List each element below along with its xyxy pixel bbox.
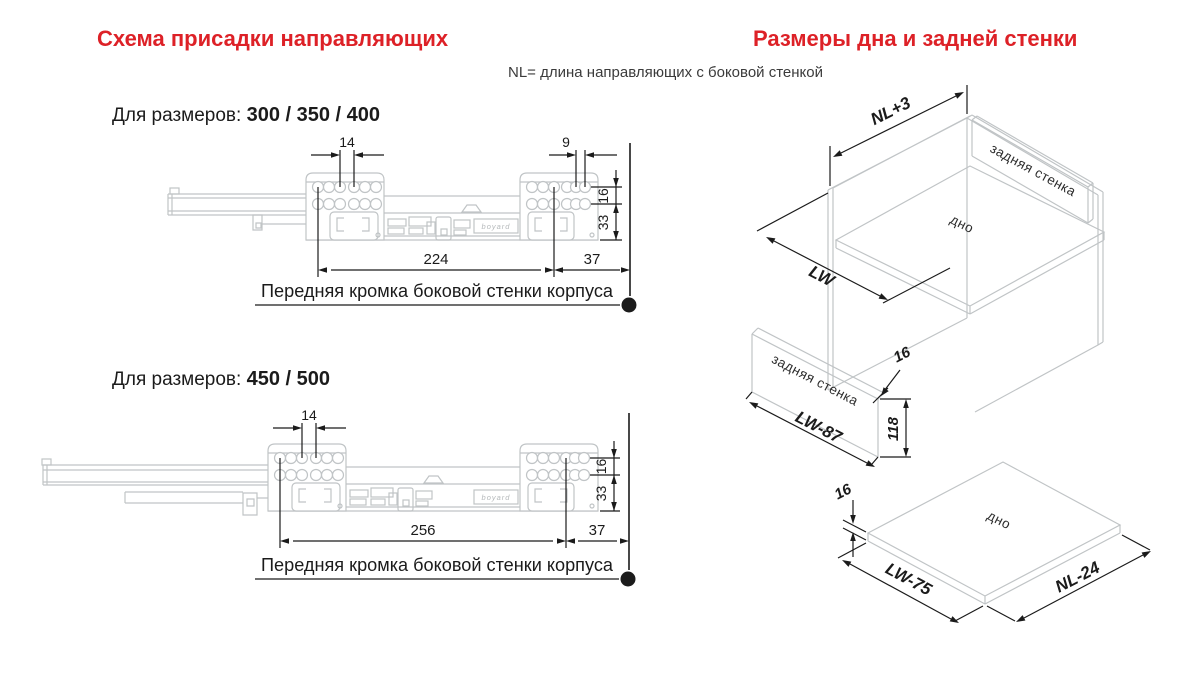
dim-16-bottom-thickness-label: 16 (832, 480, 855, 503)
brand-logo: boyard (482, 222, 511, 231)
dim-256-label: 256 (410, 522, 435, 539)
size-label-2: Для размеров: 450 / 500 (112, 368, 330, 391)
dim-37-label: 37 (589, 522, 606, 539)
subtitle: NL= длина направляющих с боковой стенкой (508, 64, 823, 81)
reference-dot-2 (621, 572, 636, 587)
page: Схема присадки направляющих Размеры дна … (0, 0, 1200, 675)
dim-33-label: 33 (593, 486, 609, 502)
slide-rail-gray-2: boyard (42, 444, 598, 515)
dim-14-label: 14 (301, 407, 317, 423)
bottom-panel-label: дно (948, 212, 977, 236)
size-label-1-prefix: Для размеров: (112, 105, 241, 126)
slide-rail-gray-1: boyard (168, 173, 598, 240)
mount-block-right (520, 444, 598, 511)
slide-mechanism: boyard (388, 205, 518, 240)
brand-logo: boyard (482, 493, 511, 502)
size-label-2-sizes: 450 / 500 (247, 368, 330, 390)
latch-lever (462, 205, 481, 212)
slide-drawing-2: boyard (40, 400, 660, 600)
slide-mechanism: boyard (350, 476, 518, 511)
reference-dot-1 (622, 298, 637, 313)
right-title: Размеры дна и задней стенки (753, 26, 1077, 52)
left-title: Схема присадки направляющих (97, 26, 448, 52)
rail-hook (42, 459, 51, 465)
dim-16-label: 16 (595, 188, 611, 204)
exploded-back-panel: задняя стенка LW-87 16 118 (746, 328, 914, 467)
exploded-bottom-panel-label: дно (985, 508, 1014, 532)
front-edge-label-2: Передняя кромка боковой стенки корпуса (261, 555, 614, 575)
dim-nl3: NL+3 (830, 85, 967, 186)
slide-drawing-1: boyard (150, 130, 660, 320)
size-label-2-prefix: Для размеров: (112, 369, 241, 390)
dim-nl24-label: NL-24 (1052, 558, 1103, 597)
dim-16-label: 16 (593, 459, 609, 475)
dim-224-label: 224 (423, 251, 448, 268)
size-label-1: Для размеров: 300 / 350 / 400 (112, 104, 380, 127)
front-edge-label-1: Передняя кромка боковой стенки корпуса (261, 281, 614, 301)
rail-hook (170, 188, 179, 194)
dim-14-label: 14 (339, 134, 355, 150)
cabinet-iso-drawing: задняя стенка дно NL+3 LW задняя стенка … (720, 85, 1200, 675)
mount-block-right (520, 173, 598, 240)
dim-lw-label: LW (806, 262, 839, 292)
dim-9-label: 9 (562, 134, 570, 150)
dim-33-label: 33 (595, 215, 611, 231)
dim-37-label: 37 (584, 251, 601, 268)
dim-nl3-label: NL+3 (867, 93, 914, 129)
size-label-1-sizes: 300 / 350 / 400 (247, 104, 380, 126)
latch-lever (424, 476, 443, 483)
dim-118-label: 118 (885, 416, 902, 441)
dim-lw87-label: LW-87 (792, 407, 846, 447)
exploded-bottom-panel: дно LW-75 NL-24 16 (832, 462, 1151, 623)
